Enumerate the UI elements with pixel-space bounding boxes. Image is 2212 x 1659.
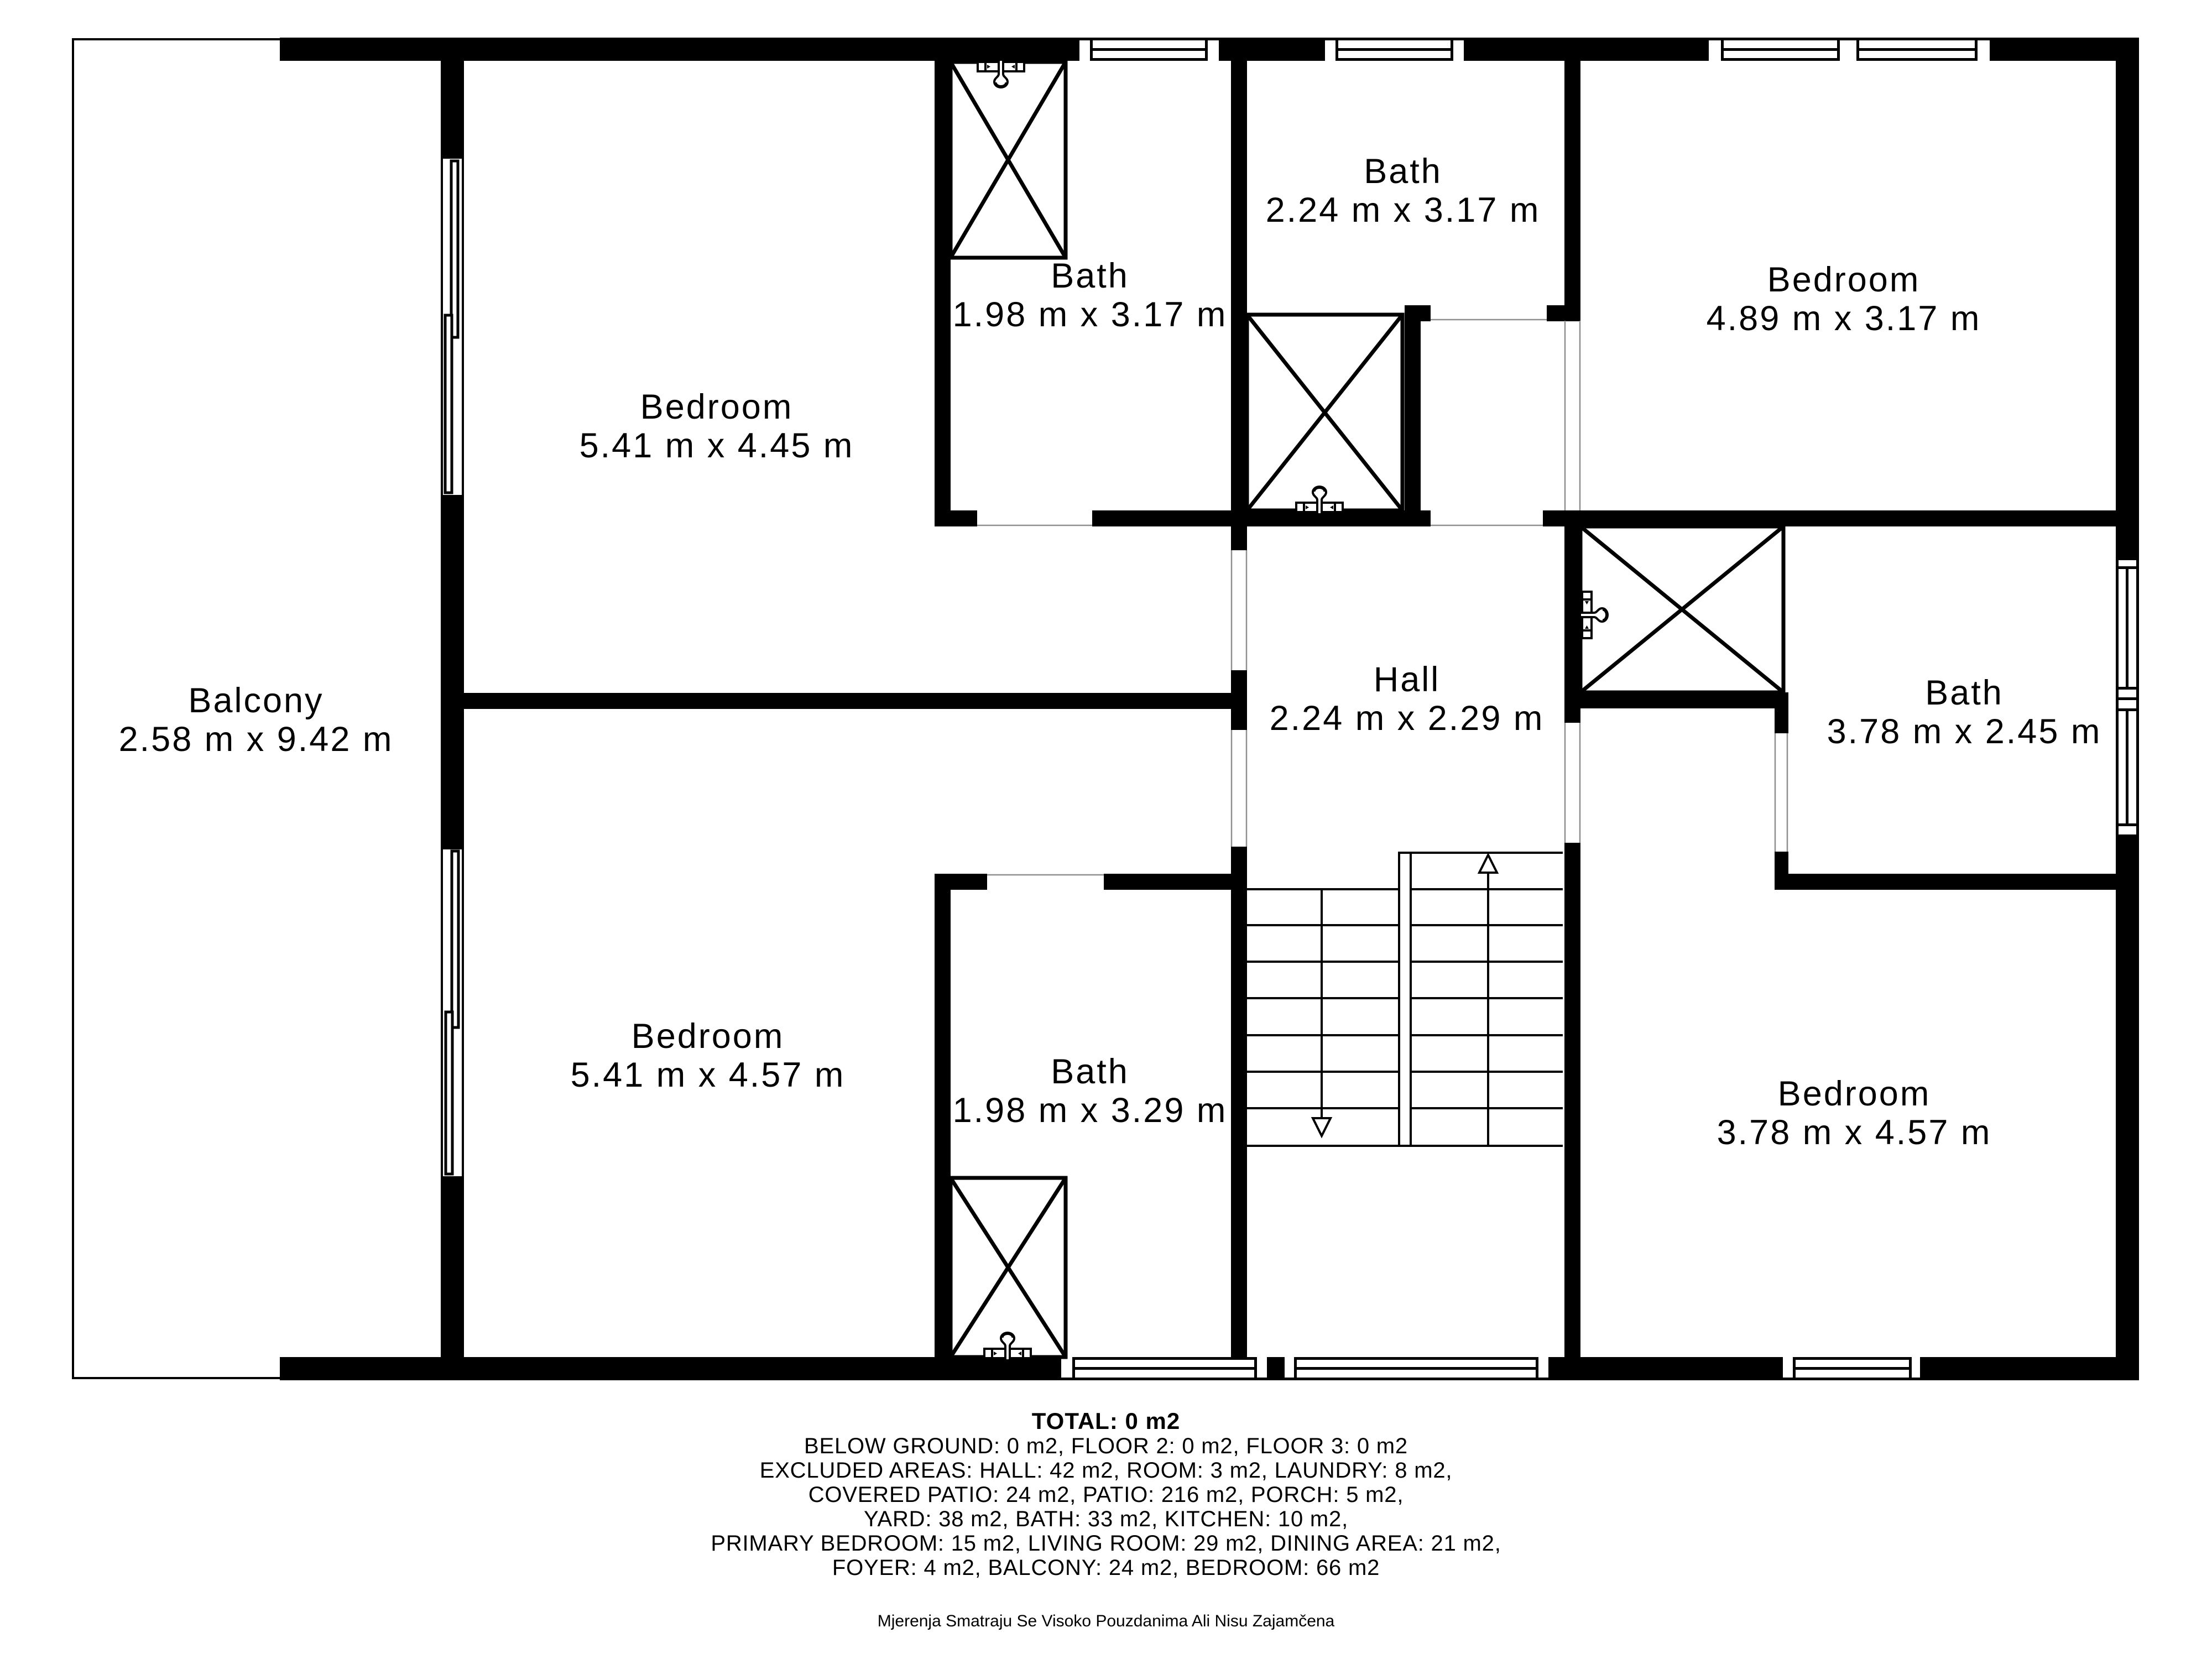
svg-text:1.98 m x 3.29 m: 1.98 m x 3.29 m [953,1091,1228,1130]
svg-text:Bedroom: Bedroom [640,388,794,426]
svg-text:BELOW GROUND: 0 m2, FLOOR 2: 0: BELOW GROUND: 0 m2, FLOOR 2: 0 m2, FLOOR… [804,1434,1408,1458]
svg-text:4.89 m x 3.17 m: 4.89 m x 3.17 m [1707,299,1981,338]
svg-text:2.58 m x 9.42 m: 2.58 m x 9.42 m [119,720,394,759]
svg-text:Bedroom: Bedroom [1767,260,1921,299]
svg-text:Hall: Hall [1374,660,1441,699]
svg-text:2.24 m x 2.29 m: 2.24 m x 2.29 m [1270,699,1545,738]
svg-text:Bath: Bath [1364,152,1442,191]
svg-text:Bath: Bath [1925,674,2004,712]
svg-text:2.24 m x 3.17 m: 2.24 m x 3.17 m [1266,191,1541,229]
svg-text:5.41 m x 4.45 m: 5.41 m x 4.45 m [580,426,854,465]
svg-text:3.78 m x 4.57 m: 3.78 m x 4.57 m [1717,1113,1992,1152]
svg-text:Bedroom: Bedroom [1778,1074,1931,1113]
svg-text:TOTAL: 0 m2: TOTAL: 0 m2 [1032,1408,1180,1434]
svg-text:EXCLUDED AREAS: HALL: 42 m2, R: EXCLUDED AREAS: HALL: 42 m2, ROOM: 3 m2,… [760,1458,1453,1483]
svg-text:Bedroom: Bedroom [632,1017,785,1056]
svg-text:Balcony: Balcony [188,681,324,720]
svg-text:1.98 m x 3.17 m: 1.98 m x 3.17 m [953,295,1228,334]
svg-text:COVERED PATIO: 24 m2, PATIO: 2: COVERED PATIO: 24 m2, PATIO: 216 m2, POR… [808,1483,1404,1507]
svg-text:3.78 m x 2.45 m: 3.78 m x 2.45 m [1827,712,2102,751]
svg-text:Mjerenja Smatraju Se Visoko Po: Mjerenja Smatraju Se Visoko Pouzdanima A… [878,1612,1335,1630]
svg-text:5.41 m x 4.57 m: 5.41 m x 4.57 m [571,1056,846,1094]
svg-text:FOYER: 4 m2, BALCONY: 24 m2, B: FOYER: 4 m2, BALCONY: 24 m2, BEDROOM: 66… [832,1556,1380,1580]
svg-text:Bath: Bath [1051,257,1129,295]
svg-text:YARD: 38 m2, BATH: 33 m2, KITC: YARD: 38 m2, BATH: 33 m2, KITCHEN: 10 m2… [864,1507,1348,1531]
svg-text:Bath: Bath [1051,1052,1129,1091]
svg-text:PRIMARY BEDROOM: 15 m2, LIVING: PRIMARY BEDROOM: 15 m2, LIVING ROOM: 29 … [711,1531,1501,1556]
